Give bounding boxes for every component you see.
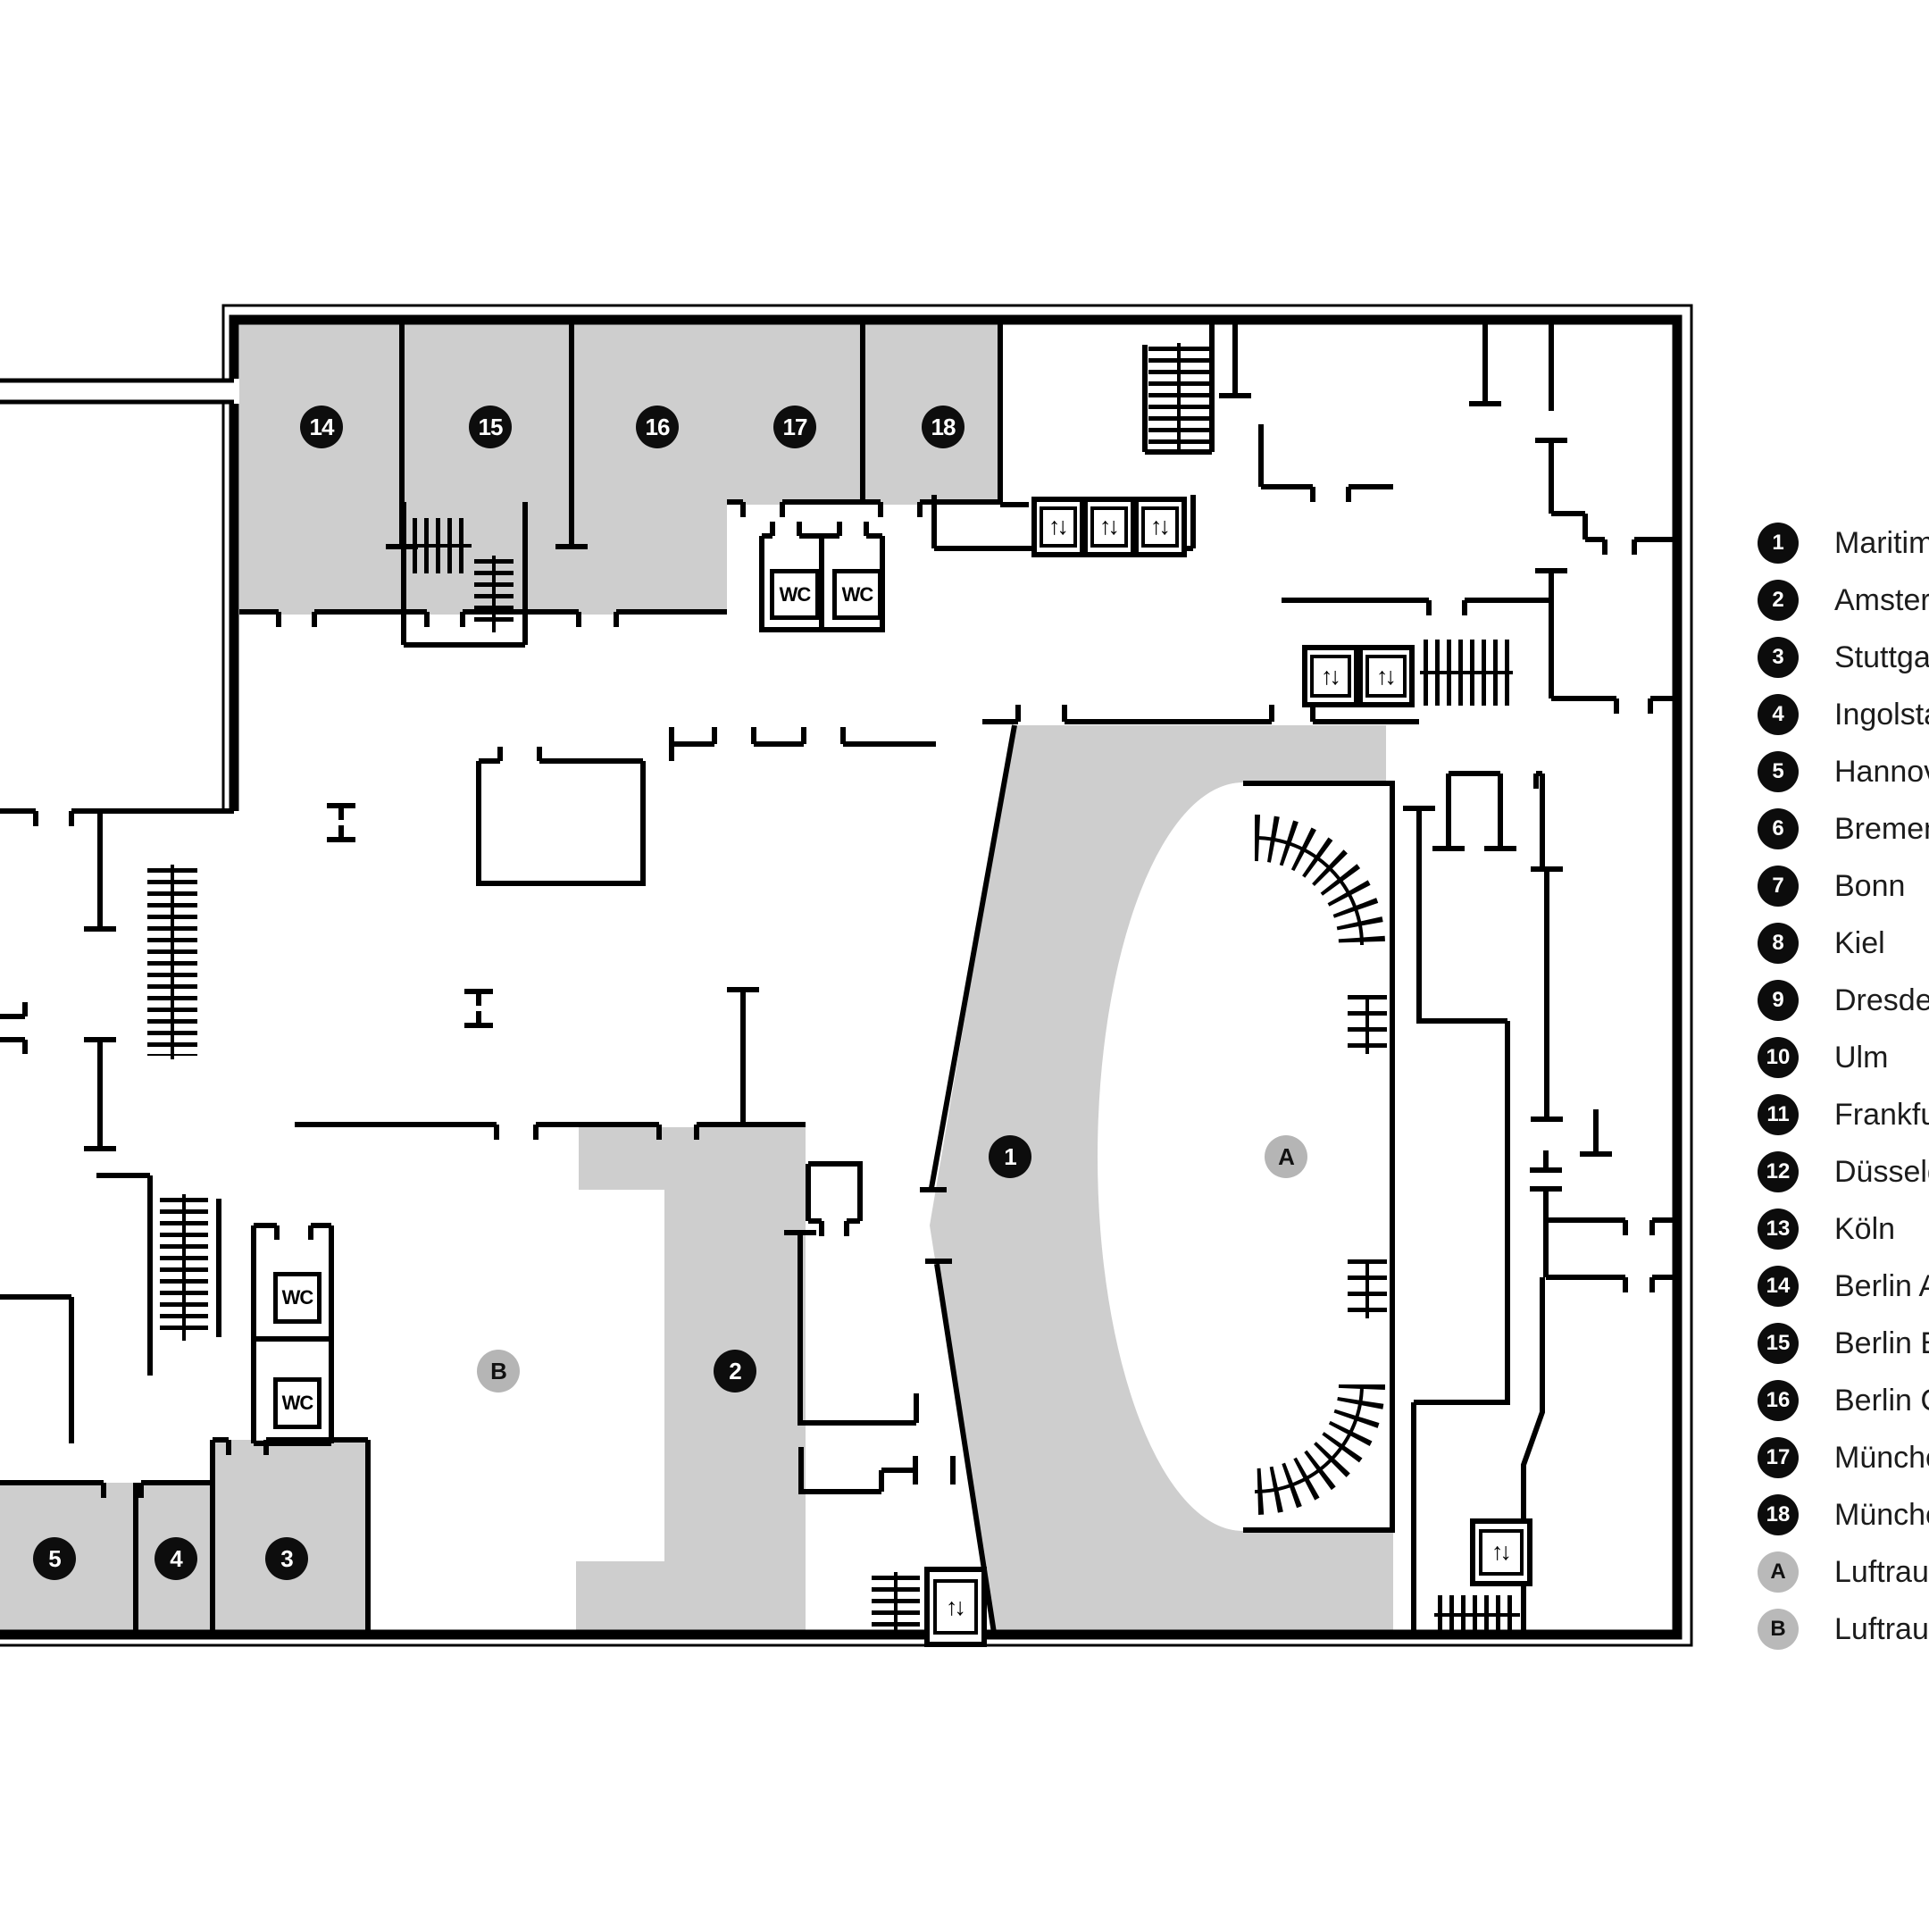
- room-badge-2: 2: [714, 1350, 756, 1393]
- legend-item-2: 2Amsterda: [1758, 580, 1929, 621]
- legend-badge: 14: [1758, 1266, 1799, 1307]
- legend-item-11: 11Frankfurt: [1758, 1094, 1929, 1135]
- legend-badge: 3: [1758, 637, 1799, 678]
- legend-badge: 4: [1758, 694, 1799, 735]
- legend-badge: 15: [1758, 1323, 1799, 1364]
- staircase-icon: [1438, 1595, 1516, 1635]
- elevator-arrows-icon: ↑↓: [1365, 655, 1406, 697]
- room-badge-18: 18: [922, 406, 964, 448]
- room-badge-4: 4: [154, 1537, 197, 1580]
- legend-badge: B: [1758, 1609, 1799, 1650]
- legend-label: Dresden: [1834, 983, 1929, 1018]
- staircase-icon: [474, 559, 514, 629]
- room-badge-15: 15: [469, 406, 512, 448]
- legend-label: Maritim E: [1834, 526, 1929, 561]
- legend-label: Kiel: [1834, 926, 1885, 961]
- legend-label: München: [1834, 1498, 1929, 1533]
- legend-badge: 16: [1758, 1380, 1799, 1421]
- elevator-arrows-icon: ↑↓: [933, 1579, 977, 1634]
- legend-badge: 17: [1758, 1437, 1799, 1478]
- elevator-arrows-icon: ↑↓: [1090, 506, 1129, 548]
- legend-badge: 5: [1758, 751, 1799, 792]
- legend-label: Berlin C: [1834, 1384, 1929, 1418]
- wc-room-label: WC: [832, 569, 882, 620]
- wc-room-label: WC: [770, 569, 820, 620]
- legend-label: Ulm: [1834, 1041, 1888, 1075]
- room-badge-3: 3: [265, 1537, 308, 1580]
- legend-label: Berlin B: [1834, 1326, 1929, 1361]
- legend-badge: 12: [1758, 1151, 1799, 1192]
- legend-badge: 18: [1758, 1494, 1799, 1535]
- elevator-arrows-icon: ↑↓: [1479, 1529, 1523, 1576]
- legend-item-b: BLuftraum,: [1758, 1609, 1929, 1650]
- legend-badge: 2: [1758, 580, 1799, 621]
- legend-item-18: 18München: [1758, 1494, 1929, 1535]
- legend-label: Berlin A: [1834, 1269, 1929, 1304]
- legend-item-17: 17München: [1758, 1437, 1929, 1478]
- legend-badge: A: [1758, 1551, 1799, 1593]
- elevator-arrows-icon: ↑↓: [1141, 506, 1180, 548]
- room-badge-a: A: [1265, 1135, 1307, 1178]
- room-badge-1: 1: [989, 1135, 1031, 1178]
- legend-item-15: 15Berlin B: [1758, 1323, 1929, 1364]
- legend-item-12: 12Düsseldo: [1758, 1151, 1929, 1192]
- legend-item-5: 5Hannove: [1758, 751, 1929, 792]
- room-badge-16: 16: [636, 406, 679, 448]
- legend-item-8: 8Kiel: [1758, 923, 1885, 964]
- legend-label: Ingolstad: [1834, 698, 1929, 732]
- elevator-icon: ↑↓: [1470, 1518, 1532, 1586]
- elevator-arrows-icon: ↑↓: [1310, 655, 1350, 697]
- staircase-icon: [1148, 347, 1209, 450]
- legend-item-3: 3Stuttgart: [1758, 637, 1929, 678]
- legend-item-1: 1Maritim E: [1758, 523, 1929, 564]
- walls-center: [295, 990, 953, 1492]
- legend-label: Amsterda: [1834, 583, 1929, 618]
- legend-item-9: 9Dresden: [1758, 980, 1929, 1021]
- legend-label: Düsseldo: [1834, 1155, 1929, 1190]
- legend-label: Bremen: [1834, 812, 1929, 847]
- staircase-icon: [147, 868, 197, 1056]
- room-badge-5: 5: [33, 1537, 76, 1580]
- legend-label: München: [1834, 1441, 1929, 1476]
- legend-item-4: 4Ingolstad: [1758, 694, 1929, 735]
- room-badge-17: 17: [773, 406, 816, 448]
- room-badge-14: 14: [300, 406, 343, 448]
- legend-item-16: 16Berlin C: [1758, 1380, 1929, 1421]
- legend-badge: 1: [1758, 523, 1799, 564]
- legend-badge: 10: [1758, 1037, 1799, 1078]
- legend-item-a: ALuftraum,: [1758, 1551, 1929, 1593]
- legend-badge: 11: [1758, 1094, 1799, 1135]
- legend-label: Köln: [1834, 1212, 1895, 1247]
- wc-room-label: WC: [273, 1377, 321, 1429]
- elevator-arrows-icon: ↑↓: [1040, 506, 1078, 548]
- legend-badge: 6: [1758, 808, 1799, 849]
- elevator-icon: ↑↓: [1031, 497, 1085, 557]
- legend-item-10: 10Ulm: [1758, 1037, 1888, 1078]
- elevator-icon: ↑↓: [1357, 645, 1415, 707]
- legend-item-13: 13Köln: [1758, 1209, 1895, 1250]
- legend-badge: 9: [1758, 980, 1799, 1021]
- room-badge-b: B: [477, 1350, 520, 1393]
- legend-item-14: 14Berlin A: [1758, 1266, 1929, 1307]
- walls-right: [1282, 324, 1677, 1631]
- staircase-icon: [160, 1198, 208, 1337]
- left-corridor-walls: [0, 381, 234, 402]
- room-2-fill: [576, 1127, 806, 1635]
- legend-badge: 13: [1758, 1209, 1799, 1250]
- legend-badge: 7: [1758, 866, 1799, 907]
- staircase-icon: [872, 1576, 920, 1635]
- staircase-icon: [413, 518, 468, 573]
- wc-room-label: WC: [273, 1272, 321, 1324]
- legend-label: Hannove: [1834, 755, 1929, 790]
- legend-label: Stuttgart: [1834, 640, 1929, 675]
- floor-plan-page: ↑↓ ↑↓ ↑↓ ↑↓ ↑↓ ↑↓ ↑↓ WC WC WC WC 14 15 1…: [0, 0, 1929, 1932]
- legend-item-7: 7Bonn: [1758, 866, 1905, 907]
- legend-label: Luftraum,: [1834, 1555, 1929, 1590]
- legend-label: Luftraum,: [1834, 1612, 1929, 1647]
- legend-item-6: 6Bremen: [1758, 808, 1929, 849]
- legend-label: Frankfurt: [1834, 1098, 1929, 1133]
- elevator-icon: ↑↓: [1082, 497, 1136, 557]
- legend-badge: 8: [1758, 923, 1799, 964]
- staircase-icon: [1424, 640, 1509, 706]
- legend-label: Bonn: [1834, 869, 1905, 904]
- elevator-icon: ↑↓: [1133, 497, 1187, 557]
- elevator-icon: ↑↓: [924, 1567, 987, 1647]
- elevator-icon: ↑↓: [1302, 645, 1359, 707]
